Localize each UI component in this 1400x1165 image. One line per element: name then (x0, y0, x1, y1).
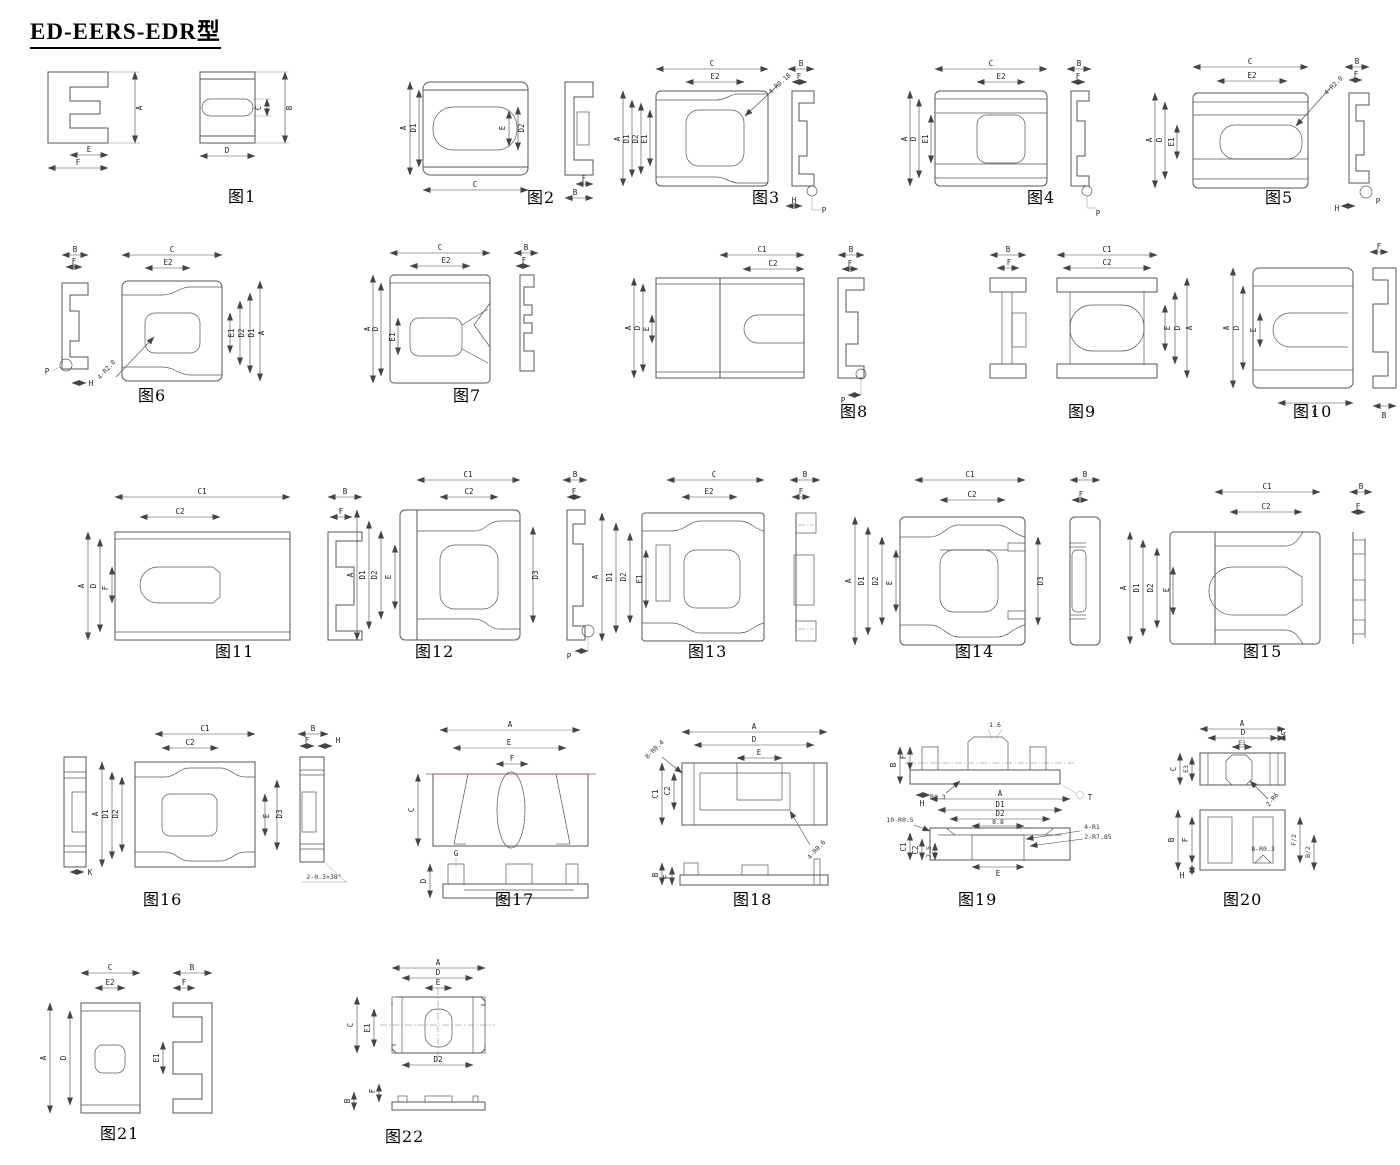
figure-21: C E2 A D B F E1 (40, 952, 275, 1146)
dim-label: D (371, 326, 380, 331)
figure-13: C E2 A D1 D2 E1 B F (592, 455, 847, 669)
dim-label: E2 (710, 72, 719, 81)
dim-label: B (799, 59, 804, 68)
figure-11: C1 C2 A D F B F (60, 462, 375, 656)
dim-label: E (1162, 587, 1171, 592)
figure-caption: 图22 (385, 1123, 424, 1147)
dim-label: C (170, 245, 175, 254)
dim-label: E (87, 145, 92, 154)
dim-label: F (76, 158, 81, 167)
figure-caption: 图9 (1068, 398, 1096, 422)
dim-label: C (1248, 57, 1253, 66)
dim-label: A (257, 330, 266, 335)
part-outline (656, 278, 866, 379)
dim-label: C2 (663, 786, 672, 795)
part-outline (1253, 268, 1396, 388)
figure-18-drawing: A D E C1 C2 8-R0.4 4-R0.6 B F (642, 715, 867, 915)
figure-caption: 图4 (1027, 184, 1055, 208)
figure-caption: 图7 (453, 382, 481, 406)
annotation-label: 4-R1 (1084, 823, 1100, 831)
dim-label: D2 (619, 572, 628, 581)
dim-label: A (900, 136, 909, 141)
dim-label: C (438, 243, 443, 252)
dim-label: E2 (704, 487, 713, 496)
dim-label: E1 (388, 332, 397, 341)
figure-2-drawing: A D1 E D2 C F B (405, 62, 630, 212)
dim-label: C (1169, 767, 1178, 772)
dim-label: F (339, 507, 344, 516)
dim-label: A (346, 572, 355, 577)
dim-label: B (190, 963, 195, 972)
annotation-label: 2-R7.85 (1084, 833, 1111, 841)
dim-label: D2 (370, 570, 379, 579)
part-outline (48, 72, 255, 143)
part-outline (115, 532, 362, 640)
figure-20-drawing: A D G E1 C E3 2-R6 B F H 8-R0.3 F/2 B/2 (1130, 715, 1395, 915)
part-outline (990, 278, 1157, 378)
dim-label: E2 (441, 256, 450, 265)
figure-caption: 图18 (733, 886, 772, 910)
dim-label: E1 (921, 134, 930, 143)
dim-label: D2 (871, 576, 880, 585)
figure-3-drawing: C E2 A D1 D2 E1 4-R0.18 B F H P (618, 55, 833, 223)
figure-1-drawing: A E F C B D (30, 58, 345, 208)
dim-label: F (101, 585, 110, 590)
part-outline (900, 517, 1100, 645)
dim-label: P (822, 206, 827, 215)
dim-label: D2 (433, 1055, 442, 1064)
dim-label: D1 (101, 809, 110, 818)
dim-label: C1 (899, 842, 908, 851)
figure-19: B F H 1.6 R0.3 T A D1 D2 8.8 10-R0.5 4-R… (880, 715, 1125, 924)
dim-label: A (591, 574, 600, 579)
dim-label: F (305, 736, 310, 745)
dim-label: F (572, 487, 577, 496)
dim-label: C (989, 59, 994, 68)
figure-caption: 图12 (415, 638, 454, 662)
dim-label: E (1163, 325, 1172, 330)
annotation-label: 1.6 (989, 721, 1001, 729)
dimension-lines (634, 255, 864, 395)
part-outline (656, 91, 817, 196)
dim-label: E (436, 978, 441, 987)
dim-label: F (510, 754, 515, 763)
dim-label: E (507, 738, 512, 747)
dim-label: G (1281, 728, 1286, 737)
dim-label: D3 (275, 809, 284, 818)
dim-label: K (88, 868, 93, 877)
dim-label: C1 (757, 245, 766, 254)
part-outline (935, 91, 1092, 196)
dimension-lines (602, 480, 820, 641)
dim-label: B (311, 724, 316, 733)
part-outline (390, 275, 534, 383)
dim-label: D2 (111, 809, 120, 818)
dim-label: 7.5 (925, 846, 933, 858)
dim-label: E1 (152, 1053, 161, 1062)
dim-label: D1 (358, 570, 367, 579)
figure-6-drawing: B F P H C E2 4-R2.0 E1 D2 D1 A (42, 243, 372, 408)
dim-label: B (1382, 411, 1387, 420)
dim-label: E3 (1182, 765, 1190, 773)
dim-label: H (336, 736, 341, 745)
dim-label: B (1083, 470, 1088, 479)
dim-label: B (573, 188, 578, 197)
dim-label: C (407, 808, 416, 813)
figure-22-drawing: A D E C E1 D2 B F (330, 952, 565, 1157)
figure-1: A E F C B D (30, 58, 345, 212)
figure-caption: 图13 (688, 638, 727, 662)
dimension-lines (623, 69, 821, 210)
figure-caption: 图19 (958, 886, 997, 910)
dim-label: D3 (1036, 576, 1045, 585)
figure-caption: 图1 (228, 183, 256, 207)
figure-19-drawing: B F H 1.6 R0.3 T A D1 D2 8.8 10-R0.5 4-R… (880, 715, 1125, 920)
dim-label: F (1007, 258, 1012, 267)
dim-label: B (1077, 59, 1082, 68)
dim-label: C2 (1261, 502, 1270, 511)
dim-label: F (1356, 502, 1361, 511)
annotation-label: 4-R0.18 (767, 71, 793, 95)
figure-caption: 图20 (1223, 886, 1262, 910)
figure-12: C1 C2 A D1 D2 E D3 B F P (345, 455, 610, 669)
dim-label: P (45, 367, 50, 376)
dim-label: E2 (105, 978, 114, 987)
dim-label: D (59, 1055, 68, 1060)
dim-label: B (524, 243, 529, 252)
dim-label: D (225, 146, 230, 155)
figure-22: A D E C E1 D2 B F (330, 952, 565, 1161)
dim-label: A (1222, 325, 1231, 330)
dim-label: D (436, 968, 441, 977)
annotation-label: 2-R6 (1264, 791, 1280, 808)
dim-label: C2 (185, 738, 194, 747)
figure-4-drawing: C E2 A D E1 B F P (905, 55, 1100, 223)
figure-caption: 图2 (527, 184, 555, 208)
dim-label: C (108, 963, 113, 972)
dim-label: C (473, 180, 478, 189)
dim-label: E1 (1238, 739, 1246, 747)
dim-label: B (651, 872, 660, 877)
figure-20: A D G E1 C E3 2-R6 B F H 8-R0.3 F/2 B/2 (1130, 715, 1395, 919)
dimension-lines (910, 69, 1096, 208)
figure-caption: 图21 (100, 1120, 139, 1144)
dim-label: F (182, 978, 187, 987)
dim-label: C1 (965, 470, 974, 479)
part-outline (81, 1003, 212, 1113)
part-outline (423, 82, 593, 175)
dim-label: A (613, 136, 622, 141)
dim-label: B (803, 470, 808, 479)
dim-label: F/2 (1290, 834, 1298, 846)
dim-label: H (1180, 871, 1185, 880)
dim-label: F (72, 257, 77, 266)
dim-label: D1 (1132, 583, 1141, 592)
figure-15: C1 C2 A D1 D2 E B F (1115, 462, 1400, 661)
dimension-lines (1178, 729, 1314, 875)
annotation-label: R0.3 (930, 793, 946, 801)
dim-label: B (573, 470, 578, 479)
dim-label: E (996, 869, 1001, 878)
dimension-lines (52, 255, 260, 383)
figure-15-drawing: C1 C2 A D1 D2 E B F (1115, 462, 1400, 657)
dim-label: C (254, 106, 263, 111)
dim-label: D1 (857, 576, 866, 585)
dim-label: E2 (163, 258, 172, 267)
dim-label: A (1240, 719, 1245, 728)
annotation-label: 2-0.3×38° (306, 873, 341, 881)
dim-label: E1 (640, 134, 649, 143)
annotation-label: 10-R0.5 (886, 816, 913, 824)
part-outline (400, 510, 594, 640)
dim-label: B (343, 1098, 352, 1103)
figure-caption: 图6 (138, 382, 166, 406)
dim-label: F (1079, 490, 1084, 499)
dim-label: A (844, 578, 853, 583)
figure-4: C E2 A D E1 B F P (905, 55, 1100, 227)
dim-label: E1 (635, 574, 644, 583)
dim-label: D (1241, 728, 1246, 737)
page-title: ED-EERS-EDR型 (30, 12, 221, 49)
dim-label: E2 (1247, 71, 1256, 80)
dim-label: C (346, 1023, 355, 1028)
dim-label: D1 (622, 134, 631, 143)
figure-caption: 图8 (840, 398, 868, 422)
dim-label: D (1232, 325, 1241, 330)
dim-label: D (1155, 137, 1164, 142)
dim-label: D (633, 325, 642, 330)
dim-label: D2 (237, 328, 246, 337)
dim-label: A (624, 325, 633, 330)
figure-caption: 图17 (495, 886, 534, 910)
dim-label: F (1181, 837, 1190, 842)
dim-label: E (384, 574, 393, 579)
dim-label: B (1359, 482, 1364, 491)
dim-label: A (91, 811, 100, 816)
dim-label: D1 (409, 123, 418, 132)
dim-label: A (1145, 137, 1154, 142)
dimension-lines (88, 497, 362, 640)
dimension-lines (48, 72, 289, 168)
dim-label: 8.8 (992, 818, 1004, 826)
dim-label: A (135, 105, 144, 110)
dimension-lines (990, 255, 1187, 378)
dim-label: D1 (247, 328, 256, 337)
figure-13-drawing: C E2 A D1 D2 E1 B F (592, 455, 847, 665)
dim-label: A (1119, 585, 1128, 590)
figure-16-drawing: K C1 C2 A D1 D2 E D3 B F H 2-0.3×38° (50, 722, 350, 912)
figure-14: C1 C2 A D1 D2 E D3 B F (840, 455, 1115, 669)
figure-caption: 图14 (955, 638, 994, 662)
part-outline (680, 763, 828, 885)
dim-label: H (920, 799, 925, 808)
part-outline (1170, 532, 1365, 644)
dim-label: E2 (996, 72, 1005, 81)
figure-7-drawing: C E2 A D E1 B F (368, 243, 553, 405)
dim-label: B (889, 762, 898, 767)
part-outline (1193, 93, 1372, 198)
dim-label: D1 (995, 800, 1004, 809)
dim-label: B (849, 245, 854, 254)
figure-12-drawing: C1 C2 A D1 D2 E D3 B F P (345, 455, 610, 665)
dim-label: C2 (911, 845, 920, 854)
dim-label: P (1096, 209, 1101, 218)
dim-label: A (508, 720, 513, 729)
dim-label: E (1249, 327, 1258, 332)
figure-caption: 图11 (215, 638, 254, 662)
dim-label: F (799, 487, 804, 496)
dim-label: C1 (651, 789, 660, 798)
dim-label: P (1376, 197, 1381, 206)
dim-label: H (1335, 204, 1340, 213)
dim-label: E (642, 326, 651, 331)
dim-label: E1 (363, 1023, 372, 1032)
part-outline (60, 281, 222, 381)
figure-9-drawing: B F C1 C2 E D A (975, 243, 1210, 423)
dim-label: C1 (1262, 482, 1271, 491)
dim-label: C2 (464, 487, 473, 496)
dim-label: E1 (1167, 137, 1176, 146)
dim-label: C1 (197, 487, 206, 496)
figure-caption: 图3 (752, 184, 780, 208)
dim-label: C (712, 470, 717, 479)
dim-label: D2 (517, 123, 526, 132)
dimension-lines (418, 730, 580, 898)
figure-caption: 图15 (1243, 638, 1282, 662)
figure-11-drawing: C1 C2 A D F B F (60, 462, 375, 652)
dim-label: C2 (967, 490, 976, 499)
annotation-label: 4-R2.0 (96, 358, 118, 381)
dimension-lines (357, 480, 588, 651)
dim-label: B (285, 105, 294, 110)
dim-label: D2 (995, 809, 1004, 818)
dim-label: F (1377, 242, 1382, 251)
figure-caption: 图16 (143, 886, 182, 910)
dim-label: H (792, 196, 797, 205)
dim-label: A (436, 958, 441, 967)
dim-label: D (89, 583, 98, 588)
part-outline (642, 513, 816, 641)
dim-label: A (752, 722, 757, 731)
figure-caption: 图5 (1265, 184, 1293, 208)
dim-label: C1 (1102, 245, 1111, 254)
dim-label: E1 (227, 328, 236, 337)
dim-label: H (89, 379, 94, 388)
dim-label: F (522, 256, 527, 265)
dim-label: F (899, 754, 908, 759)
figure-3: C E2 A D1 D2 E1 4-R0.18 B F H P (618, 55, 833, 227)
dim-label: D (419, 878, 428, 883)
dim-label: D3 (531, 570, 540, 579)
dim-label: F (797, 72, 802, 81)
dim-label: A (77, 583, 86, 588)
dim-label: A (399, 125, 408, 130)
dimension-lines (855, 480, 1100, 645)
part-outline (426, 772, 596, 898)
dim-label: D2 (631, 134, 640, 143)
dim-label: D (752, 735, 757, 744)
annotation-label: 8-R0.3 (1251, 845, 1275, 853)
dim-label: D (909, 136, 918, 141)
dim-label: A (39, 1055, 48, 1060)
dim-label: F (848, 259, 853, 268)
dim-label: B/2 (1304, 846, 1312, 858)
dimension-lines (1130, 492, 1372, 644)
dim-label: F (582, 174, 587, 183)
figure-6: B F P H C E2 4-R2.0 E1 D2 D1 A (42, 243, 372, 412)
dim-label: D (1173, 325, 1182, 330)
dim-label: A (1185, 325, 1194, 330)
dim-label: A (998, 789, 1003, 798)
dim-label: P (567, 652, 572, 661)
dim-label: F (1354, 70, 1359, 79)
dim-label: F (662, 874, 671, 879)
dimension-lines (50, 973, 212, 1113)
dimension-lines (410, 82, 593, 198)
dim-label: T (1088, 793, 1093, 802)
dim-label: C2 (175, 507, 184, 516)
annotation-label: 4-R0.6 (806, 838, 828, 861)
dim-label: C1 (463, 470, 472, 479)
dim-label: D2 (1146, 583, 1155, 592)
figure-8-drawing: C1 C2 A D E B F P (628, 243, 893, 423)
dim-label: E (498, 125, 507, 130)
dim-label: C1 (200, 724, 209, 733)
dim-label: E (262, 813, 271, 818)
figure-2: A D1 E D2 C F B (405, 62, 630, 216)
dim-label: B (73, 245, 78, 254)
dim-label: F (1076, 72, 1081, 81)
dim-label: G (454, 849, 459, 858)
part-outline (380, 988, 495, 1110)
figure-16: K C1 C2 A D1 D2 E D3 B F H 2-0.3×38° (50, 722, 350, 916)
figure-14-drawing: C1 C2 A D1 D2 E D3 B F (840, 455, 1115, 665)
dim-label: C2 (768, 259, 777, 268)
dim-label: E (757, 748, 762, 757)
annotation-label: 4-R2.0 (1322, 74, 1344, 96)
figure-caption: 图10 (1293, 398, 1332, 422)
dim-label: B (1355, 57, 1360, 66)
dim-label: C (710, 59, 715, 68)
dimension-lines (70, 734, 348, 882)
dim-label: F (368, 1088, 377, 1093)
dimension-lines (662, 732, 827, 885)
dimension-lines (354, 968, 485, 1110)
figure-21-drawing: C E2 A D B F E1 (40, 952, 275, 1142)
dim-label: C2 (1102, 258, 1111, 267)
dim-label: D1 (605, 572, 614, 581)
dim-label: E (885, 580, 894, 585)
dim-label: B (1006, 245, 1011, 254)
dim-label: B (1167, 837, 1176, 842)
